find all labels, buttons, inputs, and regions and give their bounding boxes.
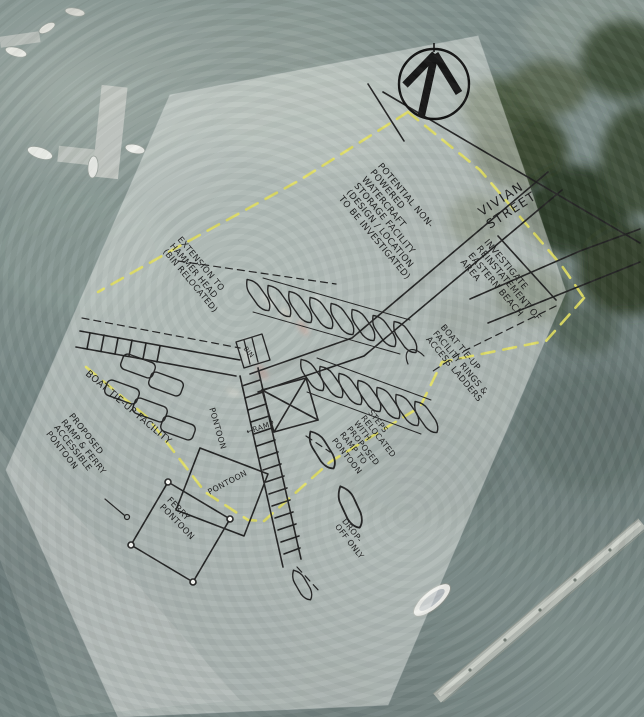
sketch-layer <box>0 0 644 717</box>
site-plan-overlay-scene: VIVIAN STREET POTENTIAL NON-POWERED WATE… <box>0 0 644 717</box>
boat-rack-upper <box>242 276 421 356</box>
hammerhead-extension <box>76 331 240 376</box>
north-arrow-icon <box>390 40 478 128</box>
